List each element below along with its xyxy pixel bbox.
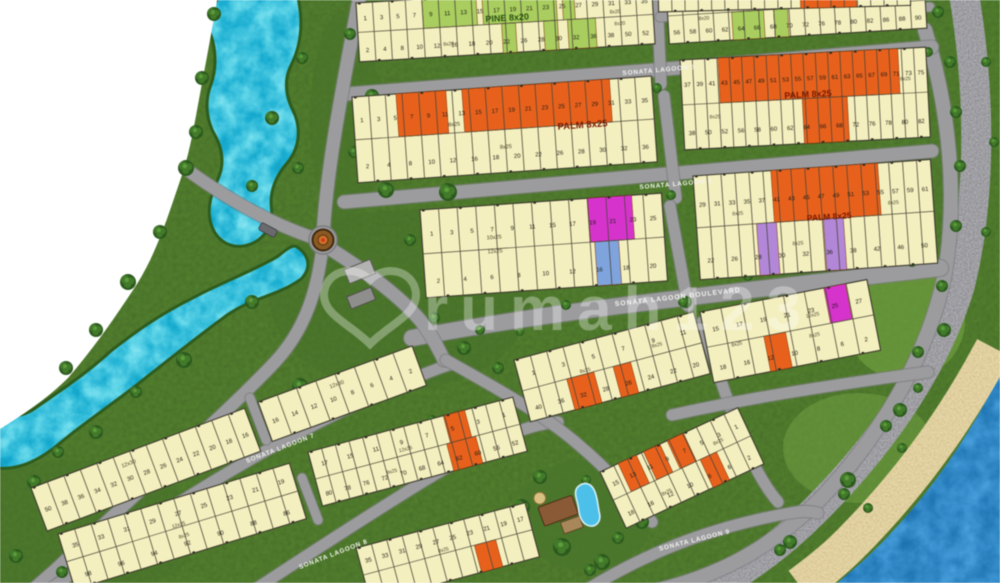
svg-text:29: 29 [591, 2, 599, 8]
svg-text:38: 38 [689, 131, 697, 137]
svg-text:31: 31 [608, 100, 616, 106]
svg-text:63: 63 [844, 74, 852, 80]
svg-text:45: 45 [803, 195, 811, 201]
svg-text:29: 29 [699, 202, 707, 208]
svg-text:32: 32 [802, 251, 810, 257]
svg-text:22: 22 [707, 258, 715, 264]
svg-text:8x20: 8x20 [609, 9, 620, 16]
svg-text:60: 60 [770, 127, 778, 133]
svg-text:43: 43 [721, 81, 729, 87]
svg-text:52: 52 [721, 129, 729, 135]
svg-text:50: 50 [921, 243, 929, 249]
svg-text:20: 20 [650, 264, 658, 270]
svg-text:26: 26 [521, 38, 529, 44]
svg-text:46: 46 [897, 245, 905, 251]
svg-text:20: 20 [514, 154, 522, 160]
svg-text:35: 35 [744, 199, 752, 205]
svg-text:8x25: 8x25 [900, 76, 911, 83]
svg-text:29: 29 [591, 102, 599, 108]
svg-text:8x25: 8x25 [500, 144, 512, 151]
svg-text:66: 66 [754, 25, 762, 31]
svg-text:15: 15 [549, 223, 557, 229]
svg-text:41: 41 [709, 81, 717, 87]
svg-text:12: 12 [450, 158, 458, 164]
svg-text:22: 22 [535, 152, 543, 158]
svg-text:10x25: 10x25 [486, 234, 501, 241]
svg-text:59: 59 [907, 188, 915, 194]
svg-text:78: 78 [885, 121, 893, 127]
svg-text:8x25: 8x25 [888, 200, 899, 207]
svg-text:26: 26 [557, 151, 565, 157]
svg-text:27: 27 [575, 3, 583, 9]
svg-text:13: 13 [460, 10, 468, 16]
svg-text:12: 12 [434, 43, 442, 49]
svg-text:45: 45 [733, 80, 741, 86]
svg-text:82: 82 [918, 119, 926, 125]
svg-text:23: 23 [541, 105, 549, 111]
svg-text:76: 76 [818, 21, 826, 27]
svg-text:51: 51 [770, 78, 778, 84]
svg-text:61: 61 [831, 75, 839, 81]
svg-text:25: 25 [558, 104, 566, 110]
svg-text:37: 37 [684, 82, 692, 88]
svg-text:28: 28 [755, 255, 763, 261]
svg-text:11: 11 [529, 224, 536, 230]
svg-text:49: 49 [833, 193, 841, 199]
svg-text:64: 64 [738, 26, 746, 32]
svg-text:rumah123: rumah123 [424, 275, 813, 344]
svg-text:90: 90 [915, 15, 923, 21]
svg-text:75: 75 [917, 70, 925, 76]
svg-text:80: 80 [850, 19, 858, 25]
svg-text:8x25: 8x25 [709, 114, 720, 121]
svg-text:50: 50 [705, 130, 713, 136]
svg-text:53: 53 [782, 77, 790, 83]
svg-text:47: 47 [745, 79, 753, 85]
svg-text:70: 70 [786, 23, 794, 29]
svg-text:19: 19 [508, 107, 516, 113]
svg-text:10: 10 [428, 160, 436, 166]
svg-text:23: 23 [630, 217, 638, 223]
svg-text:28: 28 [538, 37, 546, 43]
svg-text:25: 25 [650, 216, 658, 222]
svg-text:10: 10 [416, 45, 424, 51]
svg-text:49: 49 [758, 79, 766, 85]
svg-text:56: 56 [673, 30, 681, 36]
svg-text:68: 68 [770, 24, 778, 30]
svg-text:17: 17 [492, 109, 500, 115]
svg-text:30: 30 [599, 148, 607, 154]
svg-text:38: 38 [850, 248, 858, 254]
svg-text:37: 37 [758, 198, 766, 204]
svg-text:55: 55 [877, 190, 885, 196]
svg-text:55: 55 [795, 77, 803, 83]
svg-text:76: 76 [869, 121, 877, 127]
svg-text:42: 42 [874, 246, 882, 252]
svg-text:69: 69 [881, 72, 889, 78]
svg-text:41: 41 [773, 197, 781, 203]
svg-text:35: 35 [641, 98, 649, 104]
svg-text:22: 22 [503, 39, 511, 45]
svg-text:62: 62 [722, 27, 730, 33]
svg-text:8x20: 8x20 [443, 41, 454, 48]
svg-text:30: 30 [779, 253, 787, 259]
svg-text:65: 65 [856, 73, 864, 79]
svg-text:86: 86 [883, 17, 891, 23]
svg-text:61: 61 [922, 187, 930, 193]
svg-text:16: 16 [596, 267, 604, 273]
svg-text:67: 67 [868, 73, 876, 79]
svg-text:36: 36 [590, 34, 598, 40]
svg-text:33: 33 [625, 99, 633, 105]
svg-text:32: 32 [573, 35, 581, 41]
svg-text:35: 35 [641, 0, 649, 5]
svg-text:66: 66 [820, 124, 828, 130]
svg-text:26: 26 [731, 256, 739, 262]
svg-text:8x25: 8x25 [792, 240, 803, 247]
svg-text:38: 38 [607, 33, 615, 39]
svg-text:56: 56 [738, 128, 746, 134]
svg-text:8x25: 8x25 [732, 211, 743, 218]
svg-text:51: 51 [847, 192, 855, 198]
svg-text:23: 23 [542, 5, 550, 11]
svg-text:68: 68 [836, 123, 844, 129]
svg-text:52: 52 [642, 31, 650, 37]
svg-text:18: 18 [492, 155, 500, 161]
svg-text:36: 36 [826, 250, 834, 256]
svg-text:25: 25 [559, 4, 567, 10]
svg-text:43: 43 [788, 196, 796, 202]
svg-text:18: 18 [468, 41, 476, 47]
svg-text:32: 32 [621, 146, 629, 152]
svg-text:53: 53 [862, 191, 870, 197]
svg-text:60: 60 [706, 28, 714, 34]
svg-text:15: 15 [475, 110, 483, 116]
svg-text:58: 58 [754, 127, 762, 133]
svg-text:28: 28 [578, 149, 586, 155]
svg-text:82: 82 [867, 18, 875, 24]
svg-text:88: 88 [899, 16, 907, 22]
svg-text:39: 39 [696, 82, 704, 88]
svg-text:31: 31 [714, 201, 722, 207]
svg-text:50: 50 [625, 32, 633, 38]
svg-text:47: 47 [818, 194, 826, 200]
svg-text:21: 21 [609, 219, 617, 225]
svg-text:27: 27 [575, 103, 583, 109]
svg-text:78: 78 [834, 20, 842, 26]
svg-text:33: 33 [729, 200, 737, 206]
svg-text:17: 17 [569, 222, 577, 228]
svg-text:30: 30 [555, 36, 563, 42]
svg-text:16: 16 [471, 157, 479, 163]
svg-text:62: 62 [787, 126, 795, 132]
svg-text:36: 36 [642, 145, 650, 151]
svg-text:8x20: 8x20 [698, 15, 709, 22]
svg-text:8x20: 8x20 [614, 21, 625, 28]
svg-text:72: 72 [802, 22, 810, 28]
svg-text:80: 80 [902, 120, 910, 126]
svg-text:8x25: 8x25 [448, 122, 460, 129]
svg-text:58: 58 [689, 29, 697, 35]
svg-text:59: 59 [819, 75, 827, 81]
svg-text:18: 18 [623, 265, 631, 271]
svg-text:57: 57 [892, 189, 900, 195]
svg-text:13: 13 [458, 111, 466, 117]
svg-text:31: 31 [608, 1, 616, 7]
svg-text:72: 72 [852, 122, 860, 128]
svg-text:12x25: 12x25 [487, 248, 502, 255]
svg-text:33: 33 [624, 0, 632, 6]
svg-text:15: 15 [477, 9, 485, 15]
svg-text:64: 64 [803, 125, 811, 131]
svg-text:20: 20 [486, 40, 494, 46]
svg-text:21: 21 [525, 106, 533, 112]
svg-text:57: 57 [807, 76, 815, 82]
svg-text:19: 19 [589, 220, 597, 226]
svg-text:11: 11 [444, 11, 451, 17]
svg-text:11: 11 [442, 112, 449, 118]
